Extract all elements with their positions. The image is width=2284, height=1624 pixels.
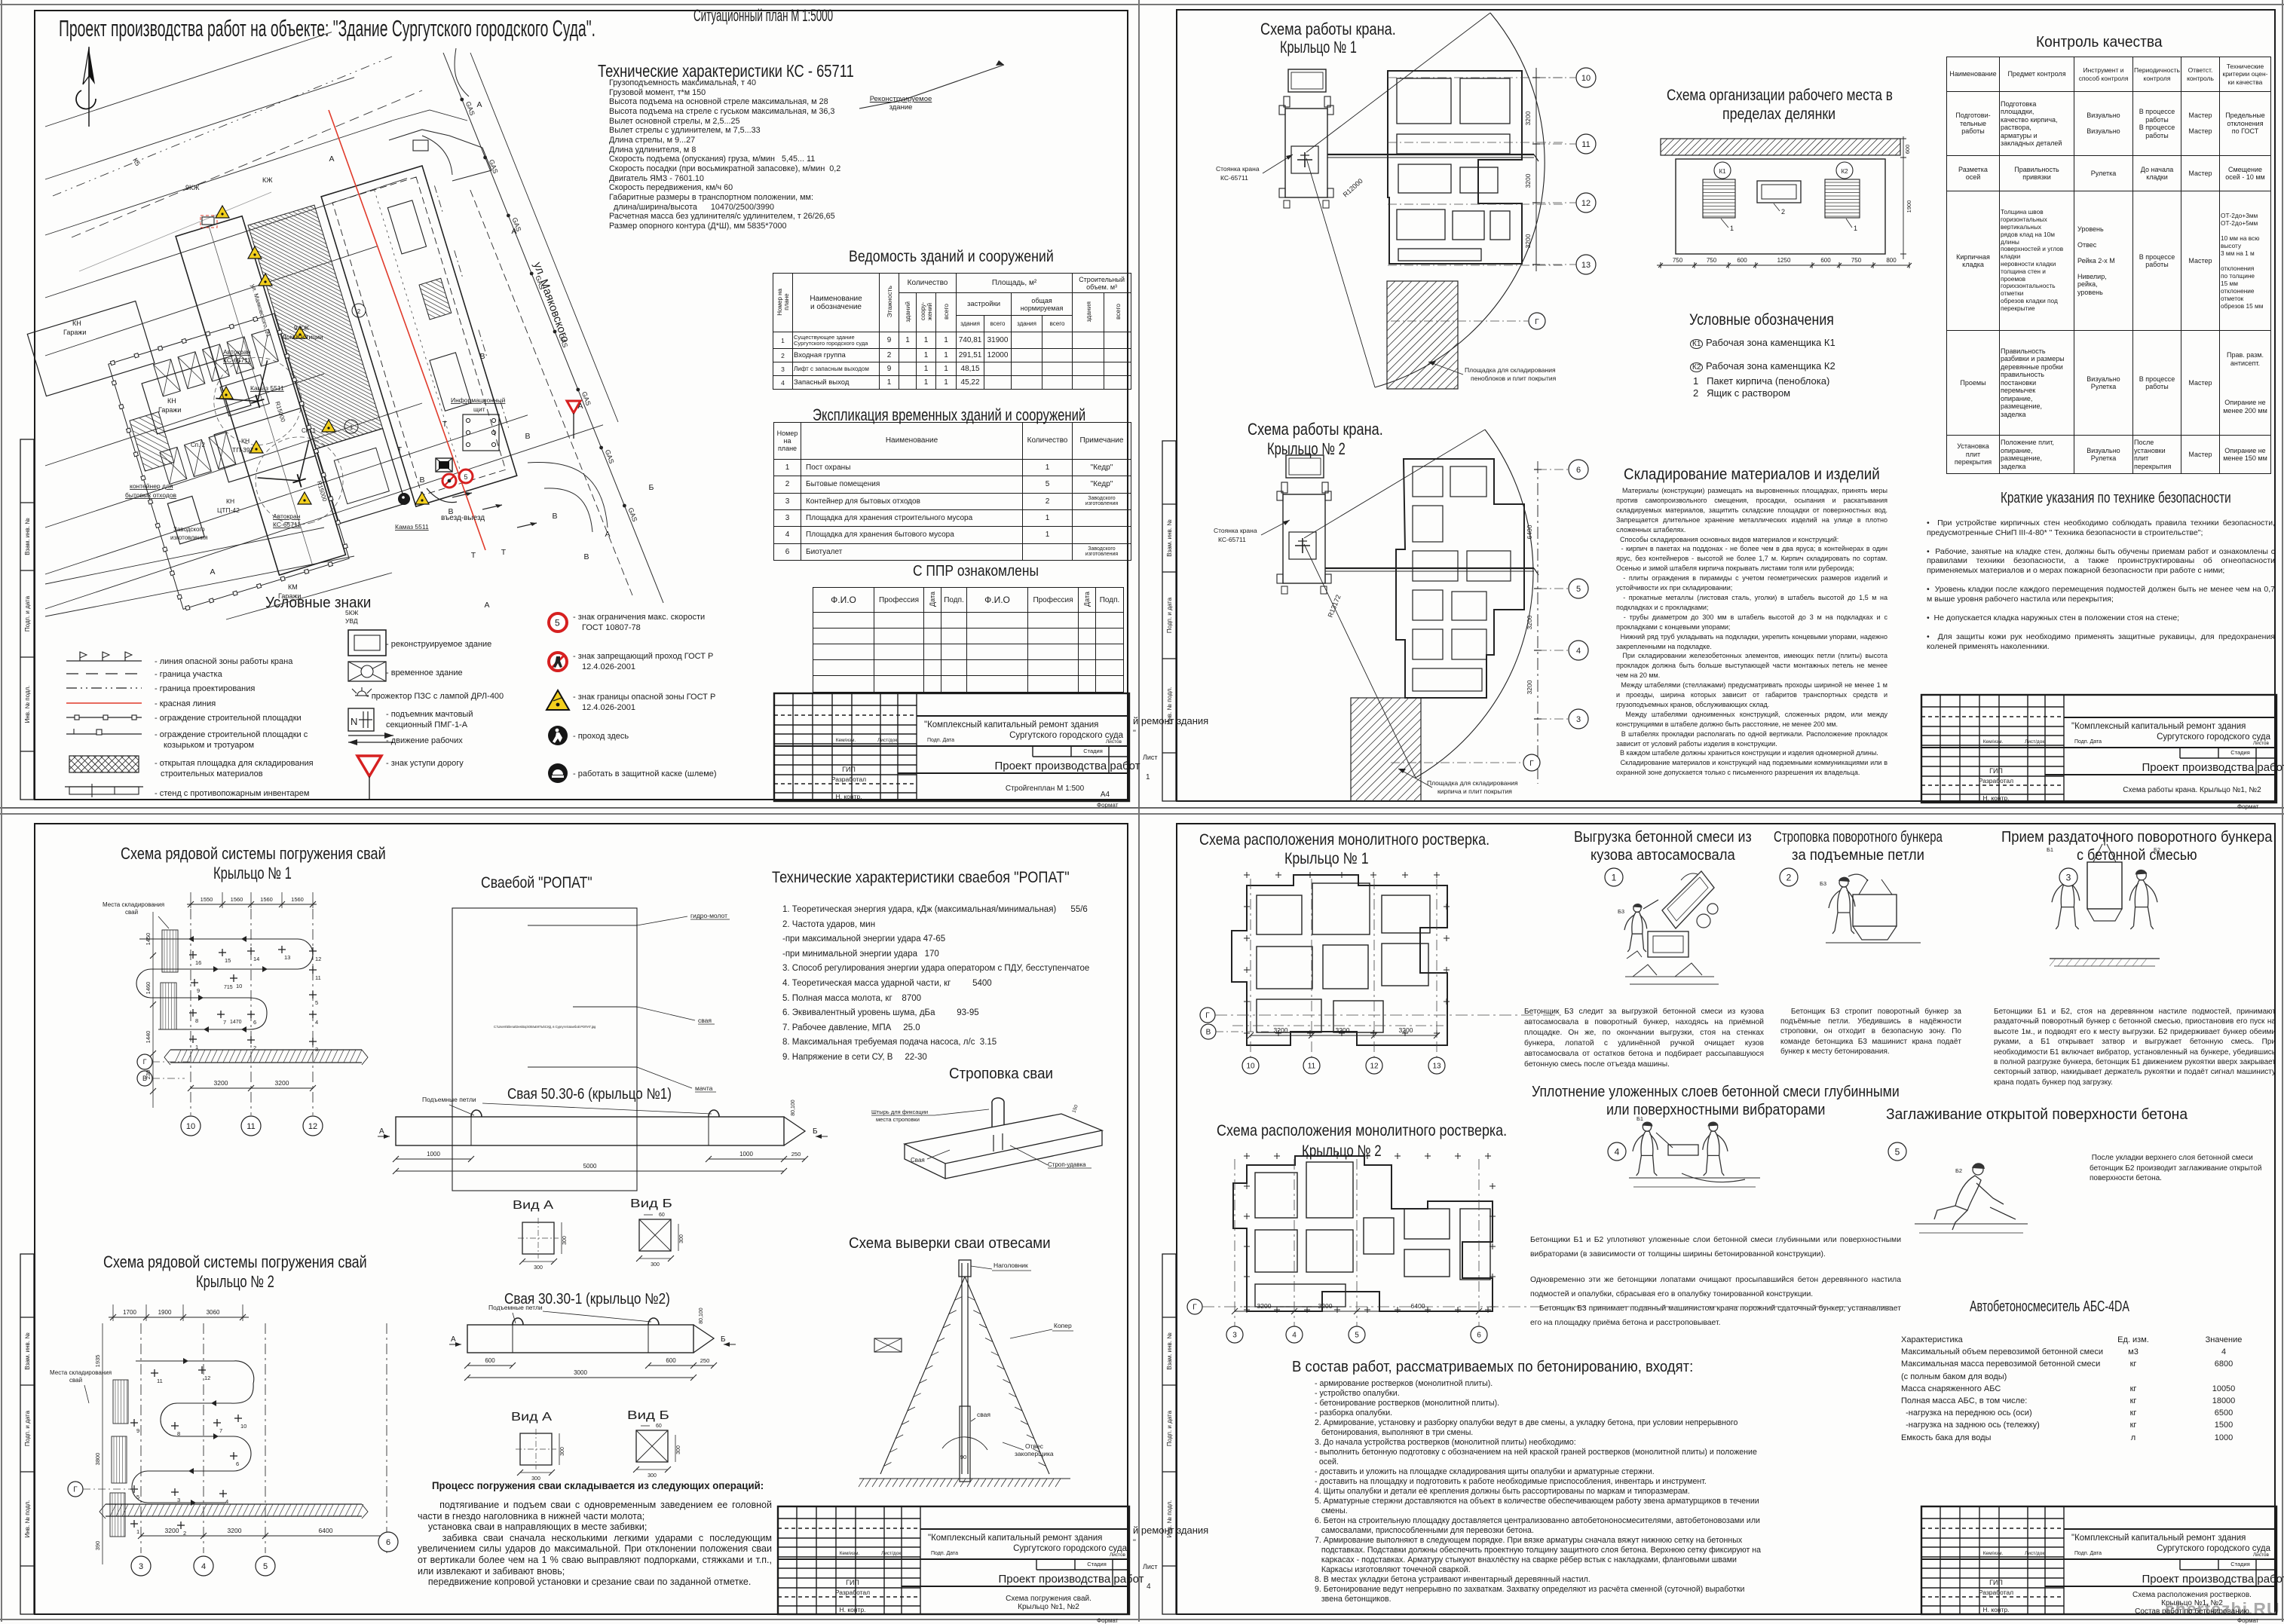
- svg-text:11: 11: [246, 1122, 255, 1131]
- svg-text:1000: 1000: [427, 1151, 440, 1158]
- svg-text:1550: 1550: [201, 896, 213, 903]
- svg-text:8: 8: [177, 1430, 180, 1437]
- svg-text:бытовых отходов: бытовых отходов: [125, 491, 177, 499]
- svg-text:"Комплексный капитальный ремон: "Комплексный капитальный ремонт здания: [2071, 722, 2246, 731]
- svg-text:- граница проектирования: - граница проектирования: [155, 684, 255, 693]
- svg-text:5: 5: [263, 1562, 268, 1571]
- svg-text:9: 9: [197, 987, 200, 994]
- svg-text:- движение рабочих: - движение рабочих: [386, 736, 463, 745]
- svg-text:гидро-молот: гидро-молот: [690, 912, 727, 919]
- svg-text:Взам. инв. №: Взам. инв. №: [24, 518, 31, 555]
- svg-text:1250: 1250: [1777, 257, 1791, 264]
- svg-text:1: 1: [1612, 872, 1617, 882]
- svg-text:4: 4: [1292, 1332, 1297, 1340]
- svg-text:13: 13: [1581, 261, 1591, 270]
- svg-text:3060: 3060: [207, 1309, 220, 1316]
- svg-text:600: 600: [666, 1357, 676, 1364]
- svg-text:4: 4: [1615, 1146, 1620, 1157]
- svg-text:- подъемник мачтовый: - подъемник мачтовый: [386, 710, 473, 719]
- svg-text:Проект производства работ: Проект производства работ: [2142, 1573, 2284, 1586]
- svg-text:- прожектор ПЗС с лампой ДРЛ-4: - прожектор ПЗС с лампой ДРЛ-400: [366, 692, 504, 701]
- svg-text:12: 12: [204, 1375, 210, 1381]
- svg-text:230: 230: [145, 1070, 152, 1080]
- svg-text:Разработал: Разработал: [1979, 1589, 2013, 1596]
- svg-text:300: 300: [676, 1445, 681, 1454]
- svg-text:Б: Б: [649, 483, 654, 492]
- svg-text:12: 12: [1370, 1063, 1379, 1071]
- svg-text:Подп. Дата: Подп. Дата: [2074, 739, 2102, 745]
- svg-text:"Комплексный капитальный ремон: "Комплексный капитальный ремонт здания: [2071, 1534, 2246, 1543]
- svg-text:А: А: [605, 530, 610, 539]
- svg-text:3: 3: [177, 1497, 180, 1503]
- svg-text:1560: 1560: [260, 896, 273, 903]
- svg-text:КС-65711: КС-65711: [1218, 536, 1246, 543]
- svg-text:6: 6: [236, 1460, 239, 1467]
- svg-text:5: 5: [555, 618, 560, 628]
- svg-text:N: N: [351, 716, 357, 727]
- svg-text:6: 6: [386, 1538, 390, 1547]
- svg-text:свай: свай: [125, 909, 138, 916]
- svg-text:- знак запрещающий проход ГОС: - знак запрещающий проход ГОСТ Р: [573, 652, 713, 661]
- svg-text:- граница участка: - граница участка: [155, 670, 223, 679]
- svg-text:свай: свай: [69, 1377, 82, 1384]
- svg-text:Взам. инв. №: Взам. инв. №: [1166, 1332, 1173, 1370]
- svg-text:80,100: 80,100: [699, 1307, 704, 1324]
- svg-text:Автокран: Автокран: [273, 512, 301, 520]
- svg-text:R15000: R15000: [274, 401, 286, 424]
- svg-text:5: 5: [1576, 585, 1581, 594]
- svg-text:А4: А4: [1101, 791, 1110, 799]
- svg-text:Листов: Листов: [1106, 739, 1122, 745]
- svg-text:Свая: Свая: [911, 1157, 925, 1164]
- svg-text:60: 60: [656, 1424, 662, 1429]
- svg-text:Проект производства работ: Проект производства работ: [998, 1573, 1144, 1586]
- svg-text:мачта: мачта: [695, 1084, 713, 1092]
- svg-text:Подп. Дата: Подп. Дата: [931, 1551, 958, 1556]
- svg-text:7: 7: [223, 1019, 226, 1026]
- svg-text:3200: 3200: [228, 1527, 242, 1534]
- svg-text:КН: КН: [167, 397, 176, 405]
- svg-text:К1: К1: [1719, 168, 1726, 175]
- svg-text:В: В: [479, 352, 485, 361]
- svg-text:Места складирования: Места складирования: [103, 901, 164, 908]
- svg-text:11: 11: [157, 1378, 163, 1384]
- svg-text:- ограждение строительной площ: - ограждение строительной площадки с: [155, 730, 308, 739]
- svg-text:6400: 6400: [319, 1527, 333, 1534]
- svg-text:ГИП: ГИП: [846, 1579, 859, 1586]
- svg-text:300: 300: [534, 1265, 543, 1271]
- svg-text:16: 16: [195, 959, 201, 966]
- svg-text:C:\Users\Elena\Desktop\ОБЪЕКТЫ: C:\Users\Elena\Desktop\ОБЪЕКТЫ\СУД, в Су…: [494, 1025, 596, 1029]
- svg-text:GAS: GAS: [488, 158, 500, 174]
- svg-text:В: В: [552, 512, 557, 521]
- svg-text:300: 300: [679, 1234, 684, 1243]
- svg-text:300: 300: [648, 1473, 657, 1479]
- svg-text:1560: 1560: [291, 896, 304, 903]
- svg-text:2: 2: [1781, 208, 1785, 216]
- svg-text:контейнер для: контейнер для: [130, 482, 173, 490]
- svg-text:Лист/док.: Лист/док.: [2025, 739, 2046, 745]
- svg-text:750: 750: [1851, 257, 1862, 264]
- svg-text:3: 3: [2066, 872, 2071, 882]
- svg-text:GAS: GAS: [464, 100, 476, 116]
- svg-text:Г: Г: [143, 1058, 147, 1066]
- svg-text:3200: 3200: [165, 1527, 179, 1534]
- svg-text:5: 5: [1355, 1332, 1359, 1340]
- svg-text:К5: К5: [131, 157, 142, 167]
- svg-text:Гаражи: Гаражи: [158, 406, 181, 414]
- svg-text:300: 300: [531, 1476, 540, 1482]
- svg-text:Взам. инв. №: Взам. инв. №: [24, 1332, 31, 1370]
- svg-text:4: 4: [315, 1019, 318, 1026]
- svg-text:КМ: КМ: [288, 583, 298, 591]
- svg-text:Камаз 5511: Камаз 5511: [250, 384, 284, 392]
- svg-text:3200: 3200: [1274, 1026, 1288, 1034]
- svg-text:Состав работ по бетонированию: Состав работ по бетонированию: [2135, 1607, 2249, 1616]
- svg-text:ТП-397: ТП-397: [232, 446, 254, 454]
- svg-text:Б3: Б3: [1820, 880, 1826, 887]
- svg-text:1935: 1935: [94, 1355, 101, 1368]
- svg-text:150: 150: [1071, 1104, 1079, 1114]
- svg-text:1470: 1470: [230, 1020, 242, 1025]
- svg-text:Стадия: Стадия: [2230, 749, 2250, 756]
- svg-text:КН: КН: [72, 320, 81, 327]
- svg-text:закоперщика: закоперщика: [1015, 1450, 1054, 1457]
- svg-text:3: 3: [1576, 715, 1581, 724]
- svg-text:13: 13: [284, 954, 290, 961]
- svg-text:Разработал: Разработал: [835, 1589, 870, 1596]
- svg-text:3200: 3200: [1399, 1026, 1413, 1034]
- svg-text:Г: Г: [1193, 1304, 1197, 1312]
- svg-text:Разработал: Разработал: [831, 775, 866, 783]
- svg-text:Г: Г: [1205, 1012, 1210, 1020]
- svg-text:КЖ: КЖ: [262, 176, 273, 184]
- svg-text:"Комплексный капитальный ремон: "Комплексный капитальный ремонт здания: [924, 720, 1098, 729]
- svg-text:В: В: [1206, 1029, 1211, 1037]
- svg-text:600: 600: [1820, 257, 1831, 264]
- svg-text:1000: 1000: [739, 1151, 753, 1158]
- svg-text:ГИП: ГИП: [1989, 1579, 2003, 1586]
- svg-text:10: 10: [240, 1423, 246, 1430]
- svg-text:9КЖ: 9КЖ: [185, 184, 200, 191]
- svg-text:К2: К2: [1841, 168, 1848, 175]
- svg-text:R12000: R12000: [1342, 177, 1364, 199]
- svg-text:12: 12: [1581, 199, 1591, 208]
- svg-text:А: А: [476, 100, 482, 109]
- svg-text:Т: Т: [471, 551, 476, 560]
- svg-text:10: 10: [1581, 74, 1591, 83]
- svg-text:3: 3: [1232, 1332, 1237, 1340]
- svg-text:3800: 3800: [94, 1453, 101, 1466]
- svg-text:- проход здесь: - проход здесь: [573, 732, 629, 741]
- svg-text:Сп. 2: Сп. 2: [191, 442, 206, 448]
- svg-text:Н. контр.: Н. контр.: [1982, 794, 2009, 802]
- svg-text:Подъемные петли: Подъемные петли: [422, 1096, 476, 1103]
- svg-text:6: 6: [1477, 1332, 1481, 1340]
- svg-text:7: 7: [219, 1427, 222, 1434]
- svg-text:Лист/док.: Лист/док.: [2025, 1551, 2046, 1556]
- svg-text:5: 5: [315, 999, 318, 1006]
- svg-text:Кем/изм.: Кем/изм.: [840, 1551, 860, 1556]
- svg-text:Наголовник: Наголовник: [994, 1262, 1028, 1269]
- svg-text:13: 13: [1432, 1063, 1441, 1071]
- svg-text:750: 750: [1707, 257, 1717, 264]
- svg-text:КН: КН: [241, 437, 250, 445]
- svg-text:GAS: GAS: [627, 506, 639, 522]
- svg-text:- знак ограничения макс. скоро: - знак ограничения макс. скорости: [573, 613, 705, 622]
- svg-text:Подп. и дата: Подп. и дата: [24, 595, 31, 632]
- svg-text:ул. Маяковского, 21: ул. Маяковского, 21: [250, 283, 272, 338]
- svg-text:"Комплексный капитальный ремон: "Комплексный капитальный ремонт здания: [928, 1534, 1102, 1543]
- svg-text:ГИП: ГИП: [842, 766, 856, 773]
- svg-text:3200: 3200: [1524, 234, 1532, 248]
- svg-text:Схема расположения ростверков: Схема расположения ростверков.: [2132, 1591, 2252, 1599]
- svg-text:14: 14: [253, 956, 259, 962]
- svg-text:Инв. № подл.: Инв. № подл.: [24, 1500, 31, 1538]
- svg-text:Подп. Дата: Подп. Дата: [927, 738, 954, 743]
- svg-text:кирпича и плит покрытия: кирпича и плит покрытия: [1437, 788, 1512, 795]
- svg-text:Н. контр.: Н. контр.: [1982, 1606, 2009, 1613]
- svg-text:изготовления: изготовления: [170, 534, 208, 541]
- svg-text:600: 600: [485, 1357, 495, 1364]
- svg-text:Н. контр.: Н. контр.: [839, 1606, 865, 1613]
- svg-text:Г: Г: [1529, 760, 1534, 768]
- svg-text:Крыльцо №1, №2: Крыльцо №1, №2: [1018, 1603, 1079, 1611]
- svg-text:- работать в защитной каске (ш: - работать в защитной каске (шлеме): [573, 769, 717, 778]
- svg-text:В: В: [583, 552, 589, 561]
- svg-text:Информационный: Информационный: [451, 396, 506, 404]
- svg-text:5: 5: [136, 1494, 139, 1500]
- svg-text:Подп. Дата: Подп. Дата: [2074, 1551, 2102, 1556]
- svg-text:строительных материалов: строительных материалов: [161, 769, 263, 778]
- svg-text:Площадка для складирования: Площадка для складирования: [1465, 366, 1556, 374]
- svg-text:R13172: R13172: [1327, 594, 1343, 619]
- svg-text:GAS: GAS: [604, 448, 616, 464]
- svg-text:- временное здание: - временное здание: [386, 668, 463, 677]
- svg-text:1450: 1450: [145, 933, 152, 946]
- svg-text:А: А: [379, 1127, 384, 1136]
- svg-text:3200: 3200: [275, 1079, 289, 1087]
- svg-text:Стадия: Стадия: [1083, 748, 1103, 754]
- svg-text:Строп-удавка: Строп-удавка: [1048, 1161, 1086, 1168]
- svg-text:3200: 3200: [1336, 1026, 1350, 1034]
- svg-text:2: 2: [253, 1044, 256, 1051]
- svg-text:места строповки: места строповки: [876, 1116, 920, 1123]
- svg-text:5: 5: [1895, 1146, 1900, 1157]
- svg-text:пеноблоков и плит покрытия: пеноблоков и плит покрытия: [1471, 375, 1557, 382]
- svg-text:Инв. № подл.: Инв. № подл.: [1166, 1500, 1173, 1538]
- svg-text:ул. Маяковского: ул. Маяковского: [531, 261, 571, 344]
- svg-text:12: 12: [308, 1122, 317, 1131]
- svg-text:12.4.026-2001: 12.4.026-2001: [582, 703, 635, 712]
- svg-text:ГОСТ 10807-78: ГОСТ 10807-78: [582, 623, 641, 632]
- svg-text:10: 10: [186, 1122, 195, 1131]
- svg-text:секционный ПМГ-1-А: секционный ПМГ-1-А: [386, 720, 468, 729]
- svg-text:250: 250: [700, 1357, 710, 1364]
- svg-text:А: А: [577, 402, 583, 411]
- svg-text:1: 1: [136, 1528, 139, 1535]
- svg-text:- знак уступи дорогу: - знак уступи дорогу: [386, 759, 464, 768]
- svg-text:Т: Т: [397, 445, 403, 454]
- svg-text:- ограждение строительной площ: - ограждение строительной площадки: [155, 714, 302, 723]
- svg-text:Стадия: Стадия: [1087, 1561, 1107, 1567]
- svg-text:- стенд с противопожарным инве: - стенд с противопожарным инвентарем: [155, 789, 309, 798]
- svg-text:11: 11: [1308, 1063, 1316, 1071]
- svg-text:90: 90: [960, 1454, 966, 1460]
- svg-text:1900: 1900: [158, 1309, 172, 1316]
- svg-text:Подп. и дата: Подп. и дата: [1166, 1410, 1173, 1446]
- svg-text:А: А: [329, 154, 334, 164]
- svg-text:4: 4: [1576, 647, 1581, 656]
- svg-text:250: 250: [791, 1151, 801, 1158]
- svg-text:1900: 1900: [1906, 200, 1912, 213]
- svg-text:- реконструируемое здание: - реконструируемое здание: [386, 640, 491, 649]
- svg-text:3200: 3200: [1524, 111, 1532, 125]
- svg-text:Кем/изм.: Кем/изм.: [1983, 1551, 2004, 1556]
- svg-text:3000: 3000: [574, 1369, 587, 1376]
- svg-text:8: 8: [195, 1017, 198, 1024]
- svg-text:Кем/изм.: Кем/изм.: [836, 738, 856, 743]
- svg-text:Подп. и дата: Подп. и дата: [24, 1410, 31, 1446]
- svg-text:Стоянка крана: Стоянка крана: [1216, 165, 1260, 173]
- svg-text:Автокран: Автокран: [223, 348, 251, 356]
- svg-text:Листов: Листов: [2253, 1552, 2270, 1558]
- svg-text:300: 300: [560, 1447, 565, 1456]
- svg-text:Сп. 1: Сп. 1: [302, 427, 317, 434]
- svg-text:ЦТП-42: ЦТП-42: [217, 506, 240, 514]
- svg-text:300: 300: [651, 1262, 660, 1268]
- svg-text:60: 60: [659, 1213, 665, 1218]
- svg-text:Разработал: Разработал: [1979, 777, 2013, 784]
- svg-text:9 КЖ: 9 КЖ: [294, 324, 309, 332]
- svg-text:3200: 3200: [1526, 680, 1533, 694]
- svg-text:2: 2: [1786, 872, 1792, 882]
- svg-text:Б2: Б2: [2154, 846, 2160, 853]
- svg-text:А: А: [451, 1335, 456, 1344]
- svg-text:Инв. № подл.: Инв. № подл.: [1166, 687, 1173, 725]
- svg-text:Б1: Б1: [2047, 846, 2053, 853]
- svg-text:390: 390: [94, 1541, 101, 1551]
- svg-text:750: 750: [1673, 257, 1683, 264]
- svg-text:11: 11: [315, 974, 321, 981]
- svg-text:В: В: [525, 432, 530, 441]
- svg-text:10: 10: [236, 983, 242, 989]
- svg-text:В: В: [448, 507, 453, 516]
- svg-text:Схема погружения свай.: Схема погружения свай.: [1006, 1595, 1091, 1603]
- svg-text:3200: 3200: [214, 1079, 228, 1087]
- svg-text:Площадка для складирования: Площадка для складирования: [1427, 779, 1518, 787]
- svg-text:Подъемные петли: Подъемные петли: [488, 1304, 543, 1311]
- svg-text:Г: Г: [73, 1486, 78, 1494]
- svg-text:козырьком и тротуаром: козырьком и тротуаром: [164, 741, 254, 750]
- svg-text:Б3: Б3: [1618, 908, 1624, 915]
- svg-text:300: 300: [562, 1236, 568, 1245]
- svg-text:1: 1: [1730, 225, 1734, 232]
- svg-text:Лист/док.: Лист/док.: [881, 1551, 902, 1556]
- svg-text:Гаражи: Гаражи: [278, 592, 301, 600]
- svg-text:Т: Т: [442, 420, 448, 429]
- svg-text:12: 12: [315, 956, 321, 962]
- svg-text:КС-65711: КС-65711: [1220, 174, 1248, 182]
- svg-text:Камаз 5511: Камаз 5511: [395, 523, 429, 531]
- svg-text:1460: 1460: [145, 982, 152, 995]
- svg-text:800: 800: [1886, 257, 1897, 264]
- svg-text:КН: КН: [226, 497, 234, 505]
- svg-text:Проект производства работ: Проект производства работ: [994, 760, 1140, 772]
- svg-text:12.4.026-2001: 12.4.026-2001: [582, 662, 635, 671]
- svg-text:Схема работы крана. Крыльцо №1: Схема работы крана. Крыльцо №1, №2: [2123, 785, 2261, 794]
- svg-text:10: 10: [1246, 1063, 1255, 1071]
- svg-text:1440: 1440: [145, 1031, 152, 1044]
- svg-text:600: 600: [1904, 145, 1911, 154]
- svg-text:11: 11: [1581, 140, 1590, 149]
- svg-text:Отвес: Отвес: [1025, 1442, 1044, 1450]
- svg-text:3200: 3200: [1318, 1302, 1333, 1310]
- svg-text:3200: 3200: [1526, 615, 1533, 629]
- svg-text:- знак границы опасной зоны: - знак границы опасной зоны ГОСТ Р: [573, 693, 715, 702]
- svg-text:9: 9: [136, 1427, 139, 1434]
- svg-text:Г: Г: [1535, 318, 1539, 326]
- svg-text:3200: 3200: [1257, 1302, 1272, 1310]
- svg-text:2: 2: [357, 308, 361, 315]
- svg-text:щит: щит: [473, 405, 485, 413]
- svg-text:Крыльцо №1, №2: Крыльцо №1, №2: [2161, 1599, 2223, 1607]
- svg-text:- красная линия: - красная линия: [155, 699, 216, 708]
- svg-text:3200: 3200: [1524, 173, 1532, 188]
- svg-text:Листов: Листов: [2253, 741, 2270, 746]
- svg-text:- линия опасной зоны работы к: - линия опасной зоны работы крана: [155, 657, 293, 666]
- svg-text:Т: Т: [501, 548, 507, 557]
- svg-text:1: 1: [350, 424, 354, 431]
- svg-text:Стройгенплан М 1:500: Стройгенплан М 1:500: [1006, 784, 1085, 793]
- svg-text:15: 15: [225, 957, 231, 964]
- svg-text:Гаражи: Гаражи: [63, 329, 86, 336]
- svg-text:5: 5: [464, 473, 467, 481]
- svg-text:Б: Б: [721, 1335, 726, 1344]
- svg-text:Б: Б: [813, 1127, 818, 1136]
- svg-text:Листов: Листов: [1110, 1552, 1126, 1558]
- svg-text:Н. контр.: Н. контр.: [835, 793, 862, 800]
- svg-text:Лист/док.: Лист/док.: [877, 738, 899, 743]
- svg-text:1: 1: [1854, 225, 1857, 232]
- svg-text:- открытая площадка для склади: - открытая площадка для складирования: [155, 759, 314, 768]
- svg-text:Стоянка крана: Стоянка крана: [1214, 527, 1257, 534]
- svg-text:Б2: Б2: [1955, 1167, 1962, 1174]
- svg-text:КС-65711: КС-65711: [273, 521, 301, 528]
- svg-text:3: 3: [139, 1562, 143, 1571]
- svg-text:Стадия: Стадия: [2230, 1561, 2250, 1567]
- svg-text:Взам. инв. №: Взам. инв. №: [1166, 519, 1173, 557]
- svg-text:6: 6: [253, 1019, 256, 1026]
- svg-text:Дом Юстиции: Дом Юстиции: [282, 333, 323, 341]
- svg-text:6: 6: [1576, 466, 1581, 475]
- svg-text:Заводского: Заводского: [173, 526, 205, 533]
- svg-text:Штырь для фиксации: Штырь для фиксации: [871, 1109, 928, 1115]
- svg-text:Инв. № подл.: Инв. № подл.: [24, 686, 31, 723]
- svg-text:А: А: [210, 567, 215, 577]
- svg-text:Копер: Копер: [1054, 1322, 1072, 1329]
- svg-text:Кем/изм.: Кем/изм.: [1983, 739, 2004, 745]
- svg-text:1700: 1700: [123, 1309, 136, 1316]
- svg-text:6400: 6400: [1526, 525, 1533, 539]
- svg-text:6400: 6400: [1411, 1302, 1425, 1310]
- svg-text:600: 600: [1737, 257, 1747, 264]
- svg-text:4: 4: [201, 1562, 206, 1571]
- svg-text:715: 715: [224, 985, 233, 990]
- svg-text:5000: 5000: [583, 1163, 597, 1170]
- svg-text:Подп. и дата: Подп. и дата: [1166, 597, 1173, 633]
- svg-text:свая: свая: [698, 1017, 712, 1024]
